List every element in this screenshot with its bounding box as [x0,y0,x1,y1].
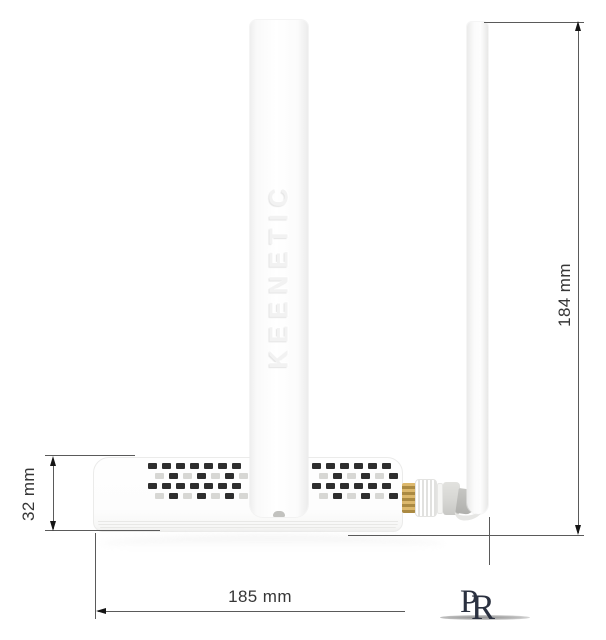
vent-cell [326,483,335,489]
extension-line [45,530,160,531]
vent-cell [197,493,206,499]
vent-cell [190,463,199,469]
vent-cell [354,463,363,469]
vent-cell [197,473,206,479]
vent-cell [354,483,363,489]
vent-cell [389,493,398,499]
vent-cell [361,473,370,479]
sma-connector-gold [402,483,416,513]
vent-cell [368,463,377,469]
antenna-right [467,22,488,514]
dimension-label-total-height: 184 mm [555,263,575,327]
vent-cell [347,473,356,479]
vent-cell [176,463,185,469]
vent-cell [312,463,321,469]
vent-cell [211,493,220,499]
vent-cell [389,473,398,479]
extension-line [348,535,584,536]
extension-line [95,533,96,619]
vent-cell [368,483,377,489]
vent-cell [312,483,321,489]
vent-cell [232,483,241,489]
vent-cell [148,483,157,489]
vent-cell [232,463,241,469]
vent-cell [319,493,328,499]
body-bottom-edge-lines [98,521,398,530]
vent-cell [162,463,171,469]
brand-embossed-text: KEENETIC [264,181,295,368]
vent-row [312,483,398,489]
vent-row [155,493,248,499]
logo-letter-r: R [471,589,495,625]
dimension-label-width: 185 mm [228,587,292,607]
vent-cell [382,463,391,469]
extension-line [484,22,584,23]
vent-cell [319,473,328,479]
watermark-logo: P R [440,584,550,636]
extension-line [45,455,135,456]
product-dimension-diagram: KEENETIC 32 mm 184 mm 185 mm P R [0,0,606,640]
dimension-line [53,459,54,529]
arrow-up-icon [50,456,56,466]
vent-cell [162,483,171,489]
arrow-down-icon [50,521,56,531]
vent-cell [382,483,391,489]
vent-grid-left [148,463,248,499]
vent-cell [347,493,356,499]
vent-row [148,483,248,489]
vent-row [312,463,398,469]
vent-cell [148,463,157,469]
vent-grid-right [312,463,398,499]
vent-cell [211,473,220,479]
vent-cell [204,483,213,489]
vent-cell [155,493,164,499]
arrow-up-icon [575,21,581,31]
antenna-left: KEENETIC [250,20,308,517]
dimension-line [578,24,579,533]
vent-cell [340,483,349,489]
vent-cell [204,463,213,469]
vent-cell [183,473,192,479]
body-reflection [100,535,445,550]
vent-cell [169,493,178,499]
vent-cell [190,483,199,489]
vent-cell [326,463,335,469]
vent-cell [375,493,384,499]
vent-cell [218,463,227,469]
dimension-line [98,611,405,612]
vent-cell [333,493,342,499]
dimension-label-body-height: 32 mm [19,467,39,521]
vent-cell [239,473,248,479]
vent-row [319,493,398,499]
arrow-down-icon [575,525,581,535]
vent-row [319,473,398,479]
vent-row [148,463,248,469]
vent-cell [225,493,234,499]
vent-cell [225,473,234,479]
antenna-knurled-nut [415,479,437,517]
vent-cell [169,473,178,479]
vent-cell [340,463,349,469]
extension-line [489,517,490,565]
vent-cell [239,493,248,499]
vent-cell [361,493,370,499]
vent-cell [183,493,192,499]
arrow-left-icon [96,608,106,614]
vent-cell [375,473,384,479]
vent-cell [155,473,164,479]
vent-cell [333,473,342,479]
vent-row [155,473,248,479]
vent-cell [218,483,227,489]
antenna-hinge-notch [273,511,285,517]
vent-cell [176,483,185,489]
